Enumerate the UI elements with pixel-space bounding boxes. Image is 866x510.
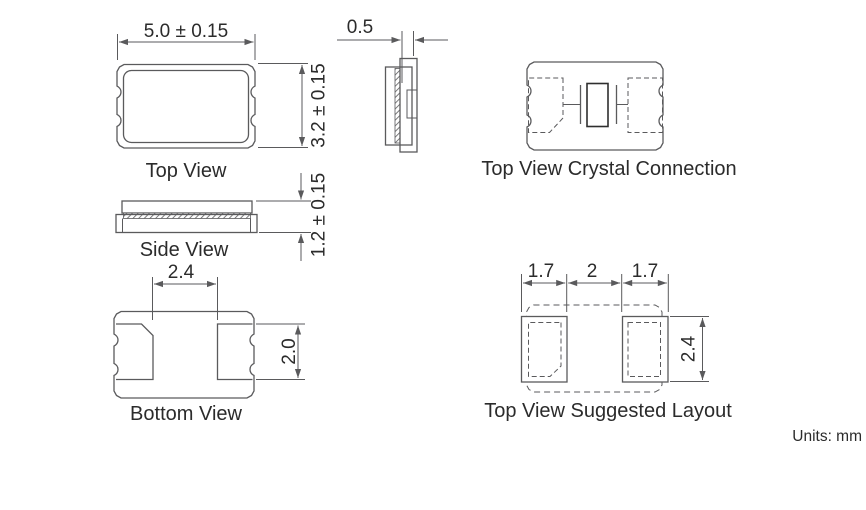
crystal-connection-drawing: Top View Crystal Connection — [481, 62, 736, 180]
end-view-seal-hatch — [395, 69, 400, 144]
side-view-drawing: 1.2 ± 0.15 Side View — [116, 173, 330, 261]
layout-left-pad-width-dimension: 1.7 — [528, 261, 554, 282]
side-view-thickness-dimension: 1.2 ± 0.15 — [309, 173, 330, 257]
side-view-lid — [122, 201, 252, 213]
crystal-connection-package-outline — [527, 62, 663, 150]
suggested-layout-drawing: 1.7 2 1.7 2.4 Top View Suggested Layout — [484, 261, 732, 422]
layout-right-pad-width-dimension: 1.7 — [632, 261, 658, 282]
layout-right-land-pad — [623, 317, 669, 383]
top-view-label: Top View — [146, 160, 227, 182]
side-view-label: Side View — [140, 239, 229, 261]
units-note: Units: mm — [792, 428, 862, 445]
side-view-seal-hatch — [124, 213, 251, 219]
bottom-view-label: Bottom View — [130, 403, 242, 425]
crystal-element-symbol — [587, 84, 608, 127]
bottom-view-pad-length-dimension: 2.0 — [279, 338, 300, 364]
mechanical-drawing-page: 5.0 ± 0.15 3.2 ± 0.15 Top View 1.2 ± 0.1… — [0, 0, 866, 510]
top-view-width-dimension: 5.0 ± 0.15 — [144, 21, 228, 42]
crystal-connection-label: Top View Crystal Connection — [481, 158, 736, 180]
bottom-view-right-pad — [218, 324, 253, 380]
top-view-drawing: 5.0 ± 0.15 3.2 ± 0.15 Top View — [117, 21, 330, 182]
top-view-lid-outline — [124, 71, 249, 143]
layout-pad-height-dimension: 2.4 — [679, 335, 700, 362]
crystal-connection-left-pad — [529, 78, 564, 133]
top-view-package-outline — [117, 65, 255, 149]
top-view-height-dimension: 3.2 ± 0.15 — [309, 63, 330, 147]
package-dimension-drawing: 5.0 ± 0.15 3.2 ± 0.15 Top View 1.2 ± 0.1… — [0, 0, 866, 510]
bottom-view-drawing: 2.4 2.0 Bottom View — [114, 262, 305, 425]
end-view-drawing: 0.5 — [337, 17, 448, 152]
crystal-connection-right-pad — [628, 78, 663, 133]
bottom-view-left-pad — [116, 324, 153, 380]
end-view-lid — [400, 59, 417, 153]
end-view-lid-dimension: 0.5 — [347, 17, 373, 38]
bottom-view-pad-spacing-dimension: 2.4 — [168, 262, 195, 283]
layout-pad-gap-dimension: 2 — [587, 261, 598, 282]
suggested-layout-label: Top View Suggested Layout — [484, 400, 732, 422]
